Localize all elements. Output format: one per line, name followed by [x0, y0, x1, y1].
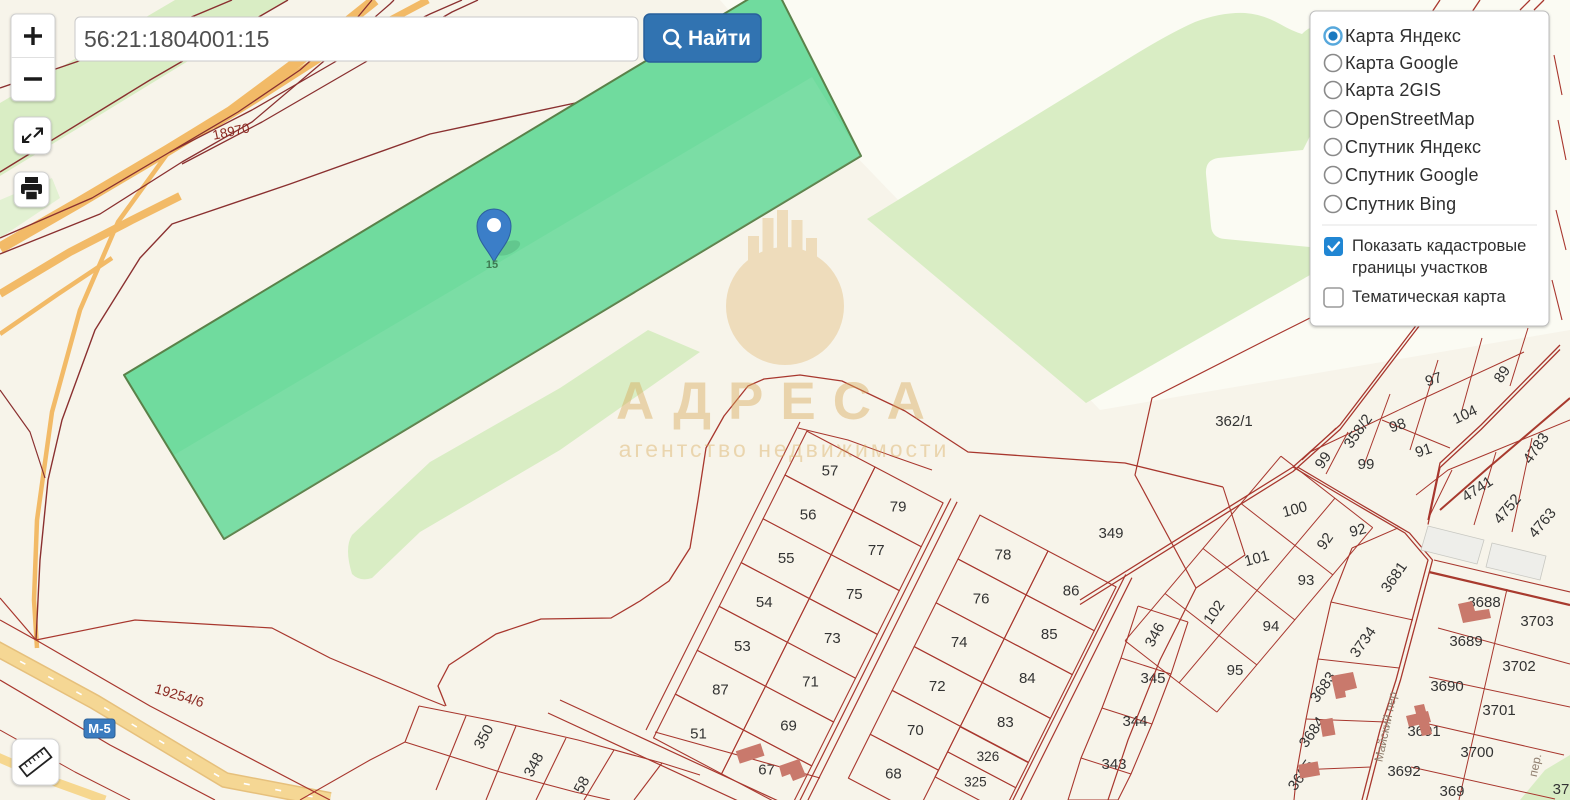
- svg-text:87: 87: [712, 682, 729, 699]
- svg-text:56: 56: [800, 506, 817, 523]
- svg-text:85: 85: [1041, 626, 1058, 643]
- svg-text:Показать кадастровые: Показать кадастровые: [1352, 237, 1526, 255]
- svg-text:72: 72: [929, 678, 946, 695]
- svg-text:3700: 3700: [1460, 744, 1493, 761]
- svg-text:53: 53: [734, 638, 751, 655]
- svg-text:15: 15: [486, 259, 498, 271]
- svg-text:70: 70: [907, 722, 924, 739]
- svg-text:3701: 3701: [1482, 702, 1515, 719]
- svg-text:349: 349: [1098, 525, 1123, 542]
- svg-text:93: 93: [1298, 572, 1315, 589]
- svg-text:Карта Яндекс: Карта Яндекс: [1345, 26, 1461, 46]
- svg-text:84: 84: [1019, 670, 1036, 687]
- svg-text:79: 79: [890, 498, 907, 515]
- svg-text:362/1: 362/1: [1215, 413, 1253, 430]
- svg-text:Найти: Найти: [688, 27, 751, 50]
- svg-text:Карта 2GIS: Карта 2GIS: [1345, 80, 1441, 100]
- svg-text:69: 69: [780, 718, 797, 735]
- svg-text:границы участков: границы участков: [1352, 259, 1488, 277]
- svg-text:67: 67: [758, 761, 775, 778]
- svg-text:3689: 3689: [1449, 633, 1482, 650]
- svg-text:Спутник Bing: Спутник Bing: [1345, 194, 1456, 214]
- svg-text:Спутник Яндекс: Спутник Яндекс: [1345, 137, 1481, 157]
- svg-text:Тематическая карта: Тематическая карта: [1352, 288, 1507, 306]
- svg-text:3702: 3702: [1502, 658, 1535, 675]
- svg-text:86: 86: [1063, 582, 1080, 599]
- svg-text:76: 76: [973, 590, 990, 607]
- svg-text:343: 343: [1101, 756, 1126, 773]
- svg-text:Спутник Google: Спутник Google: [1345, 165, 1479, 185]
- svg-text:78: 78: [995, 547, 1012, 564]
- svg-text:74: 74: [951, 634, 968, 651]
- svg-text:325: 325: [964, 774, 987, 789]
- svg-text:3703: 3703: [1520, 613, 1553, 630]
- svg-text:369: 369: [1439, 783, 1464, 800]
- svg-text:OpenStreetMap: OpenStreetMap: [1345, 109, 1475, 129]
- svg-text:95: 95: [1227, 662, 1244, 679]
- svg-text:94: 94: [1263, 618, 1280, 635]
- svg-text:М-5: М-5: [88, 721, 110, 736]
- svg-text:АДРЕСА: АДРЕСА: [616, 372, 942, 431]
- svg-text:3690: 3690: [1430, 678, 1463, 695]
- svg-text:71: 71: [802, 674, 819, 691]
- svg-text:73: 73: [824, 630, 841, 647]
- svg-text:агентство недвижимости: агентство недвижимости: [619, 436, 950, 462]
- svg-text:56:21:1804001:15: 56:21:1804001:15: [84, 26, 269, 52]
- svg-text:77: 77: [868, 542, 885, 559]
- svg-text:37: 37: [1553, 781, 1570, 798]
- svg-text:68: 68: [885, 766, 902, 783]
- svg-text:Карта Google: Карта Google: [1345, 53, 1459, 73]
- svg-text:326: 326: [977, 749, 1000, 764]
- svg-text:83: 83: [997, 714, 1014, 731]
- svg-text:99: 99: [1358, 456, 1375, 473]
- svg-text:55: 55: [778, 550, 795, 567]
- svg-text:51: 51: [690, 725, 707, 742]
- svg-text:75: 75: [846, 586, 863, 603]
- svg-text:57: 57: [822, 463, 839, 480]
- svg-text:54: 54: [756, 594, 773, 611]
- svg-text:3692: 3692: [1387, 763, 1420, 780]
